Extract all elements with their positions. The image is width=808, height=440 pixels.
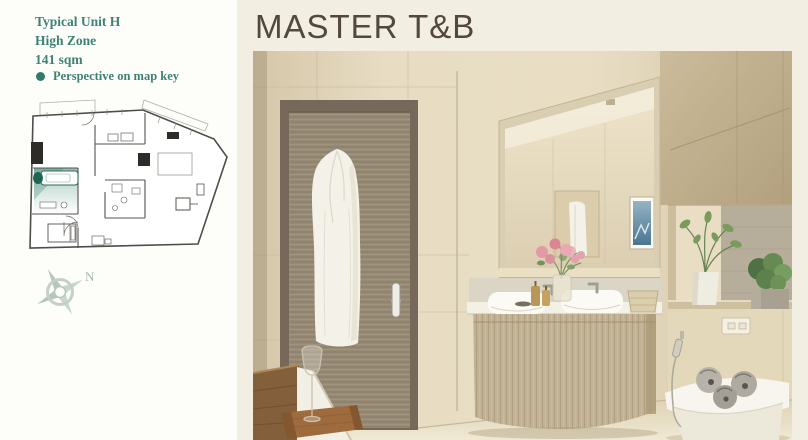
light-overlay bbox=[253, 51, 792, 440]
legend-dot-icon bbox=[36, 72, 45, 81]
map-key-legend: Perspective on map key bbox=[36, 69, 179, 84]
unit-area: 141 sqm bbox=[35, 50, 120, 69]
stove-symbol bbox=[167, 132, 179, 139]
unit-zone: High Zone bbox=[35, 31, 120, 50]
closet-block bbox=[138, 153, 150, 166]
unit-floor-plan bbox=[12, 96, 237, 271]
unit-info: Typical Unit H High Zone 141 sqm bbox=[35, 12, 120, 69]
compass-icon: N bbox=[28, 262, 103, 322]
master-bathroom-photo bbox=[253, 51, 792, 440]
compass-label: N bbox=[85, 269, 95, 284]
legend-label: Perspective on map key bbox=[53, 69, 179, 84]
wardrobe-block bbox=[31, 142, 43, 164]
bed-symbol bbox=[48, 224, 76, 242]
brochure-page: Typical Unit H High Zone 141 sqm Perspec… bbox=[0, 0, 808, 440]
master-bathtub-symbol bbox=[33, 171, 78, 185]
unit-name: Typical Unit H bbox=[35, 12, 120, 31]
page-title: MASTER T&B bbox=[255, 8, 475, 46]
